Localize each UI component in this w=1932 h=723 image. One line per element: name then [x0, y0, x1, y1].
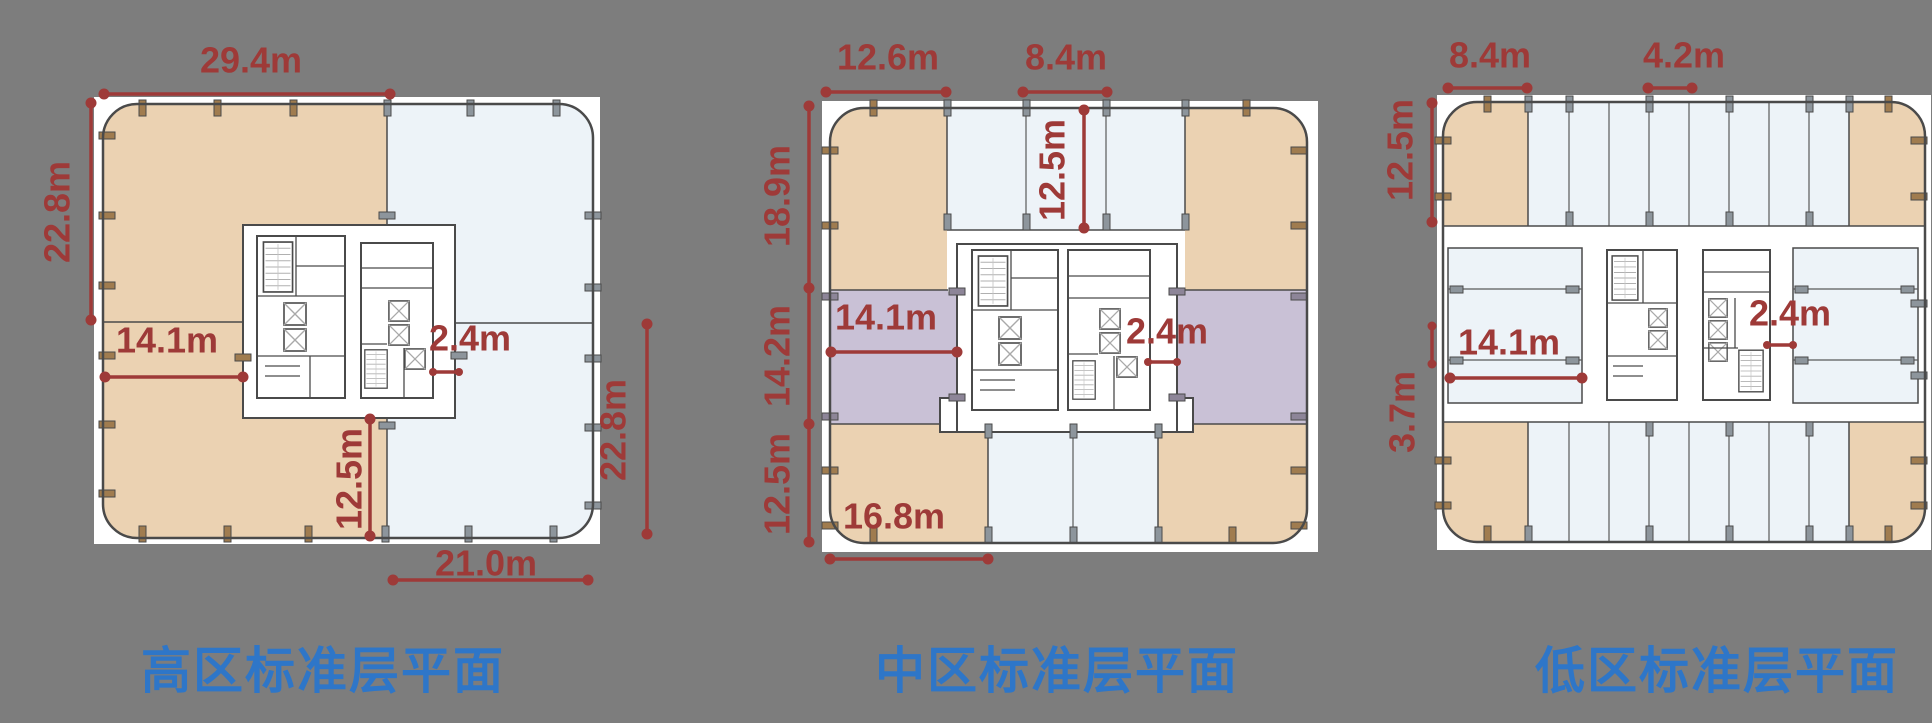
dim-label-top: 29.4m — [200, 40, 302, 81]
dim-label-inner-left: 14.1m — [835, 297, 937, 338]
dim-label-left-upper: 12.5m — [1380, 99, 1421, 201]
office-corner-tan — [1849, 102, 1925, 226]
dim-label-left-lower: 12.5m — [757, 433, 798, 535]
elevator-icon — [999, 343, 1021, 365]
dim-left-height: 22.8m — [37, 98, 97, 326]
dim-label-left-mid: 14.2m — [757, 305, 798, 407]
dim-top-left: 12.6m — [821, 37, 952, 98]
elevator-icon — [1100, 309, 1120, 329]
dim-left-mid: 14.2m — [757, 288, 815, 430]
stair-icon — [263, 242, 292, 292]
dim-label-inner-left: 14.1m — [1458, 322, 1560, 363]
office-corner-tan — [1849, 422, 1925, 542]
high-zone-plan: 29.4m 22.8m 14.1m 2.4m 12.5m 22.8m 21.0m… — [37, 40, 653, 700]
elevator-icon — [389, 301, 409, 321]
elevator-icon — [284, 329, 306, 351]
elevator-icon — [1100, 333, 1120, 353]
dim-label-core-gap: 2.4m — [1749, 293, 1831, 334]
elevator-icon — [1649, 331, 1667, 349]
stair-icon — [978, 256, 1007, 306]
dim-label-top-mid: 4.2m — [1643, 35, 1725, 76]
slide-floor-plans: 29.4m 22.8m 14.1m 2.4m 12.5m 22.8m 21.0m… — [0, 0, 1932, 723]
elevator-icon — [1709, 299, 1727, 317]
office-corner-tan — [1185, 108, 1307, 290]
office-corner-tan — [1443, 422, 1528, 542]
elevator-icon — [1709, 343, 1727, 361]
dim-label-bay-depth: 12.5m — [1032, 119, 1073, 221]
elevator-icon — [1117, 357, 1137, 377]
office-corner-tan — [1158, 424, 1307, 543]
high-zone-title: 高区标准层平面 — [141, 643, 505, 699]
dim-label-core-to-edge: 12.5m — [329, 428, 370, 530]
core-left-bank — [1607, 250, 1677, 400]
dim-bottom-width: 21.0m — [388, 543, 594, 586]
dim-top-width: 29.4m — [99, 40, 396, 100]
dim-label-top-left: 12.6m — [837, 37, 939, 78]
dim-label-left-mid: 3.7m — [1382, 371, 1423, 453]
dim-label-left: 22.8m — [37, 161, 78, 263]
elevator-icon — [405, 349, 425, 369]
dim-top-mid: 8.4m — [1018, 37, 1113, 98]
stair-icon — [365, 350, 387, 388]
elevator-icon — [1649, 309, 1667, 327]
stair-icon — [1073, 361, 1095, 399]
core-left-bank — [972, 250, 1058, 410]
office-corner-tan — [830, 108, 947, 290]
dim-label-bottom: 21.0m — [435, 543, 537, 584]
mid-zone-plan: 12.6m 8.4m 12.5m 18.9m 14.2m 12.5m 14.1m… — [757, 37, 1319, 700]
service-core — [243, 225, 455, 418]
office-corner-tan — [1443, 102, 1528, 226]
dim-label-right: 22.8m — [593, 379, 634, 481]
dim-label-core-gap: 2.4m — [1126, 311, 1208, 352]
stair-icon — [1739, 350, 1763, 392]
dim-label-top-mid: 8.4m — [1025, 37, 1107, 78]
dim-label-bottom-left: 16.8m — [843, 496, 945, 537]
elevator-icon — [1709, 321, 1727, 339]
dim-core-to-edge: 12.5m — [329, 414, 376, 542]
dim-left-mid: 3.7m — [1382, 322, 1437, 454]
stair-icon — [1612, 256, 1638, 300]
mid-zone-title: 中区标准层平面 — [875, 643, 1239, 699]
dim-left-upper: 18.9m — [757, 101, 815, 294]
dim-label-inner-left: 14.1m — [116, 320, 218, 361]
dim-top-left: 8.4m — [1443, 35, 1533, 94]
dim-label-core-gap: 2.4m — [429, 318, 511, 359]
elevator-icon — [284, 303, 306, 325]
floor-plans-figure: 29.4m 22.8m 14.1m 2.4m 12.5m 22.8m 21.0m… — [0, 0, 1932, 723]
low-zone-plan: 8.4m 4.2m 12.5m 3.7m 14.1m 2.4m 低区标准层平面 — [1380, 35, 1932, 700]
dim-left-upper: 12.5m — [1380, 98, 1438, 228]
dim-top-mid: 4.2m — [1643, 35, 1726, 94]
core-left-bank — [257, 236, 345, 398]
dim-label-left-upper: 18.9m — [757, 145, 798, 247]
elevator-icon — [999, 317, 1021, 339]
low-zone-title: 低区标准层平面 — [1535, 643, 1899, 699]
dim-left-lower: 12.5m — [757, 424, 815, 548]
dim-label-top-left: 8.4m — [1449, 35, 1531, 76]
elevator-icon — [389, 325, 409, 345]
core-right-bank — [361, 243, 433, 398]
